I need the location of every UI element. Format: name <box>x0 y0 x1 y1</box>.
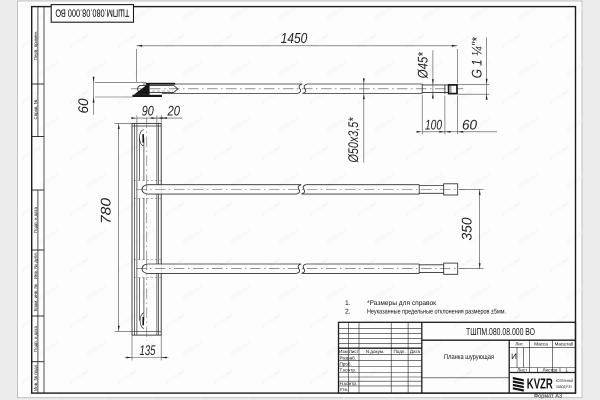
svg-text:Утв.: Утв. <box>340 387 349 392</box>
svg-text:20: 20 <box>167 102 180 118</box>
svg-text:N докум.: N докум. <box>366 349 385 354</box>
svg-text:Подп.: Подп. <box>393 349 405 354</box>
svg-text:Листов: Листов <box>543 367 558 372</box>
svg-text:Т.контр.: Т.контр. <box>340 367 357 372</box>
svg-text:Справ. №: Справ. № <box>33 99 38 119</box>
svg-text:Масштаб: Масштаб <box>555 342 574 347</box>
svg-text:Изм: Изм <box>339 349 348 354</box>
svg-text:1: 1 <box>565 367 568 372</box>
svg-text:100: 100 <box>425 117 442 133</box>
svg-text:Разраб.: Разраб. <box>340 355 357 360</box>
svg-text:Планка шурующая: Планка шурующая <box>444 354 494 361</box>
svg-text:Подп. и дата: Подп. и дата <box>33 326 38 352</box>
svg-text:ЗАВОД РЭУ: ЗАВОД РЭУ <box>556 385 572 389</box>
svg-text:1450: 1450 <box>281 31 308 47</box>
svg-text:KVZR: KVZR <box>527 377 553 393</box>
svg-text:Лит.: Лит. <box>515 342 524 347</box>
svg-text:60: 60 <box>462 117 477 133</box>
svg-text:И: И <box>511 352 517 361</box>
svg-text:ТШПМ.080.08.000 ВО: ТШПМ.080.08.000 ВО <box>466 327 535 338</box>
svg-text:Подп. и дата: Подп. и дата <box>33 207 38 233</box>
svg-text:350: 350 <box>459 217 475 240</box>
svg-text:60: 60 <box>75 98 91 113</box>
svg-text:Инв. № дубл.: Инв. № дубл. <box>33 252 38 279</box>
svg-text:Масса: Масса <box>534 342 548 347</box>
svg-text:Перв. примен.: Перв. примен. <box>33 31 38 60</box>
svg-text:G 1 ¼"*: G 1 ¼"* <box>468 37 484 78</box>
svg-text:Н.контр.: Н.контр. <box>340 381 358 386</box>
svg-text:КОТЕЛЬНЫЙ: КОТЕЛЬНЫЙ <box>556 378 574 383</box>
svg-text:Инв. № подл.: Инв. № подл. <box>33 364 38 391</box>
svg-text:2.: 2. <box>345 308 351 315</box>
svg-text:Формат А3: Формат А3 <box>534 393 562 399</box>
svg-text:Ø50х3,5*: Ø50х3,5* <box>345 117 361 163</box>
svg-text:1.: 1. <box>345 300 351 307</box>
svg-text:Ø45*: Ø45* <box>415 52 431 79</box>
svg-text:*Размеры для справок: *Размеры для справок <box>367 300 436 307</box>
svg-text:Лист: Лист <box>517 367 528 372</box>
svg-text:Проб.: Проб. <box>340 361 352 366</box>
svg-text:Взам. инв. №: Взам. инв. № <box>33 284 38 311</box>
svg-text:ТШПМ.080.08.000 ВО: ТШПМ.080.08.000 ВО <box>55 6 129 18</box>
svg-text:Дата: Дата <box>410 349 421 354</box>
svg-text:Лист: Лист <box>349 349 360 354</box>
svg-text:135: 135 <box>140 342 156 358</box>
svg-text:780: 780 <box>98 198 114 224</box>
svg-text:90: 90 <box>142 102 154 118</box>
svg-text:Неуказанные предельные отклоне: Неуказанные предельные отклонения размер… <box>367 308 506 315</box>
